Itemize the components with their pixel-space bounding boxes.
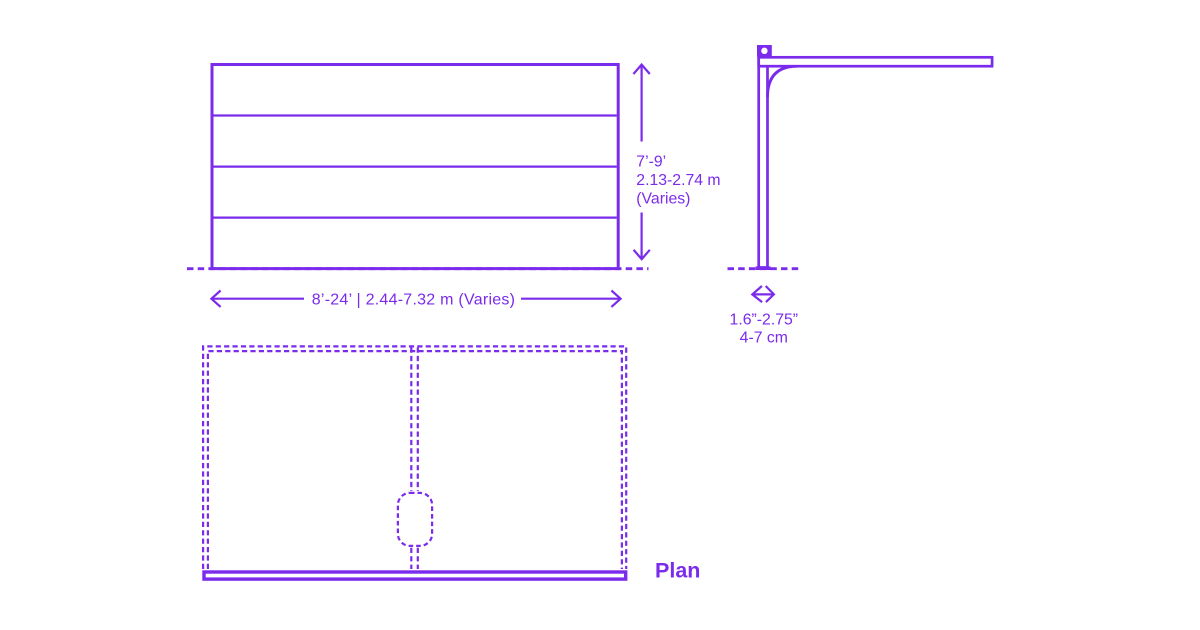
svg-text:7’-9’: 7’-9’: [636, 154, 666, 171]
svg-text:1.6”-2.75”: 1.6”-2.75”: [730, 311, 799, 328]
svg-text:4-7 cm: 4-7 cm: [740, 330, 788, 347]
svg-text:(Varies): (Varies): [636, 191, 690, 208]
svg-text:Plan: Plan: [655, 559, 700, 583]
svg-text:2.13-2.74 m: 2.13-2.74 m: [636, 172, 720, 189]
svg-text:8’-24’ | 2.44-7.32 m (Varies): 8’-24’ | 2.44-7.32 m (Varies): [312, 292, 515, 309]
